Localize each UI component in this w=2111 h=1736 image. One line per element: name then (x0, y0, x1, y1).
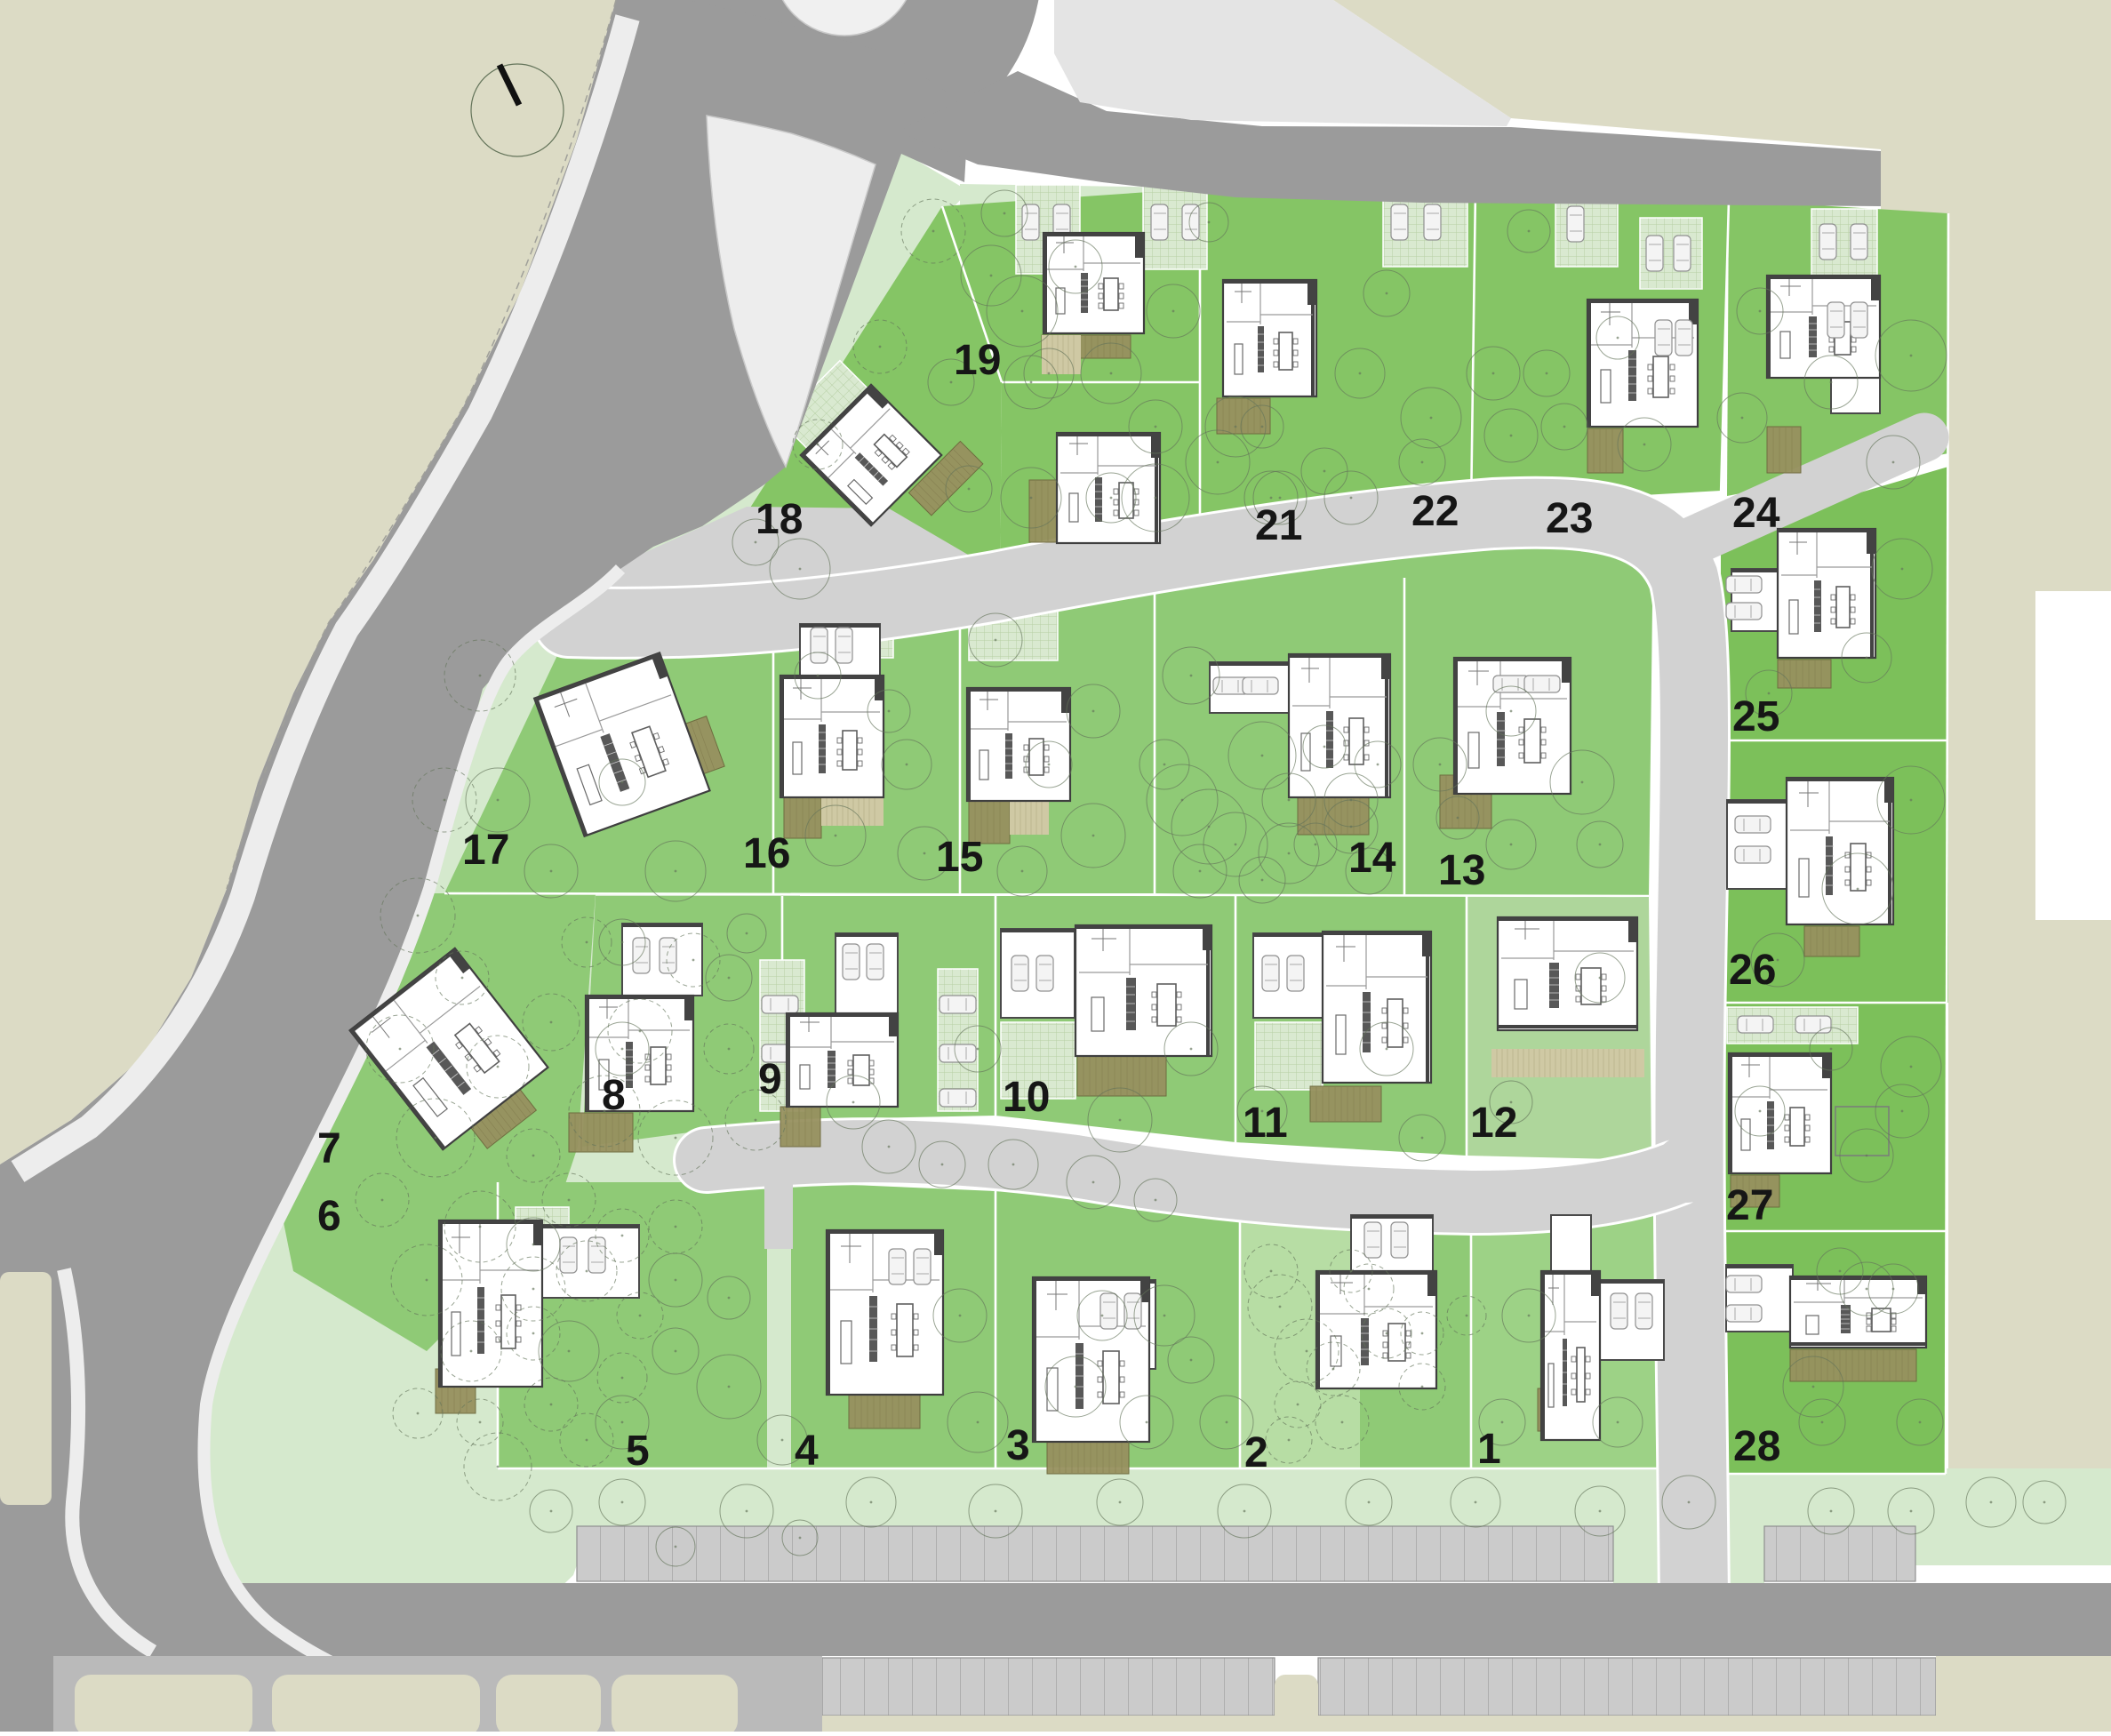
svg-text:27: 27 (1726, 1182, 1773, 1229)
svg-text:28: 28 (1733, 1423, 1780, 1470)
svg-text:18: 18 (756, 496, 803, 543)
svg-text:14: 14 (1348, 835, 1396, 882)
svg-text:21: 21 (1255, 502, 1302, 549)
svg-text:8: 8 (602, 1072, 626, 1119)
svg-text:15: 15 (936, 834, 983, 881)
svg-text:4: 4 (795, 1428, 819, 1475)
svg-text:16: 16 (743, 830, 790, 877)
svg-text:2: 2 (1244, 1429, 1268, 1476)
svg-text:5: 5 (626, 1428, 650, 1475)
svg-text:11: 11 (1243, 1100, 1288, 1147)
svg-text:22: 22 (1411, 488, 1459, 535)
svg-text:24: 24 (1732, 490, 1780, 537)
svg-text:12: 12 (1470, 1100, 1517, 1147)
svg-text:3: 3 (1006, 1422, 1030, 1469)
svg-text:23: 23 (1546, 495, 1593, 542)
svg-text:7: 7 (317, 1125, 341, 1172)
svg-text:1: 1 (1477, 1426, 1501, 1473)
svg-text:10: 10 (1003, 1074, 1050, 1121)
svg-text:26: 26 (1729, 947, 1776, 994)
svg-text:9: 9 (758, 1056, 782, 1103)
svg-text:13: 13 (1438, 847, 1485, 894)
svg-text:6: 6 (317, 1193, 341, 1240)
svg-text:25: 25 (1732, 693, 1779, 740)
svg-text:17: 17 (462, 827, 509, 874)
svg-text:19: 19 (954, 337, 1001, 384)
